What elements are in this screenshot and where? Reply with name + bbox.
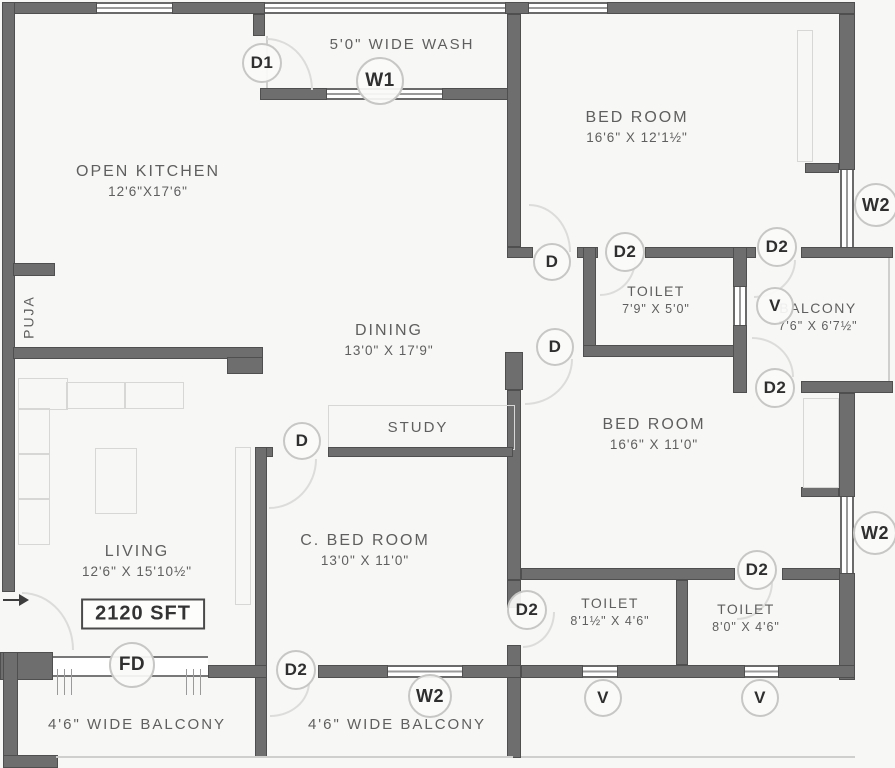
- room-label-bed-room-1: BED ROOM 16'6" X 12'1½": [585, 107, 688, 147]
- sofa: [124, 382, 184, 409]
- sofa: [66, 382, 126, 409]
- door-arc: [525, 359, 573, 405]
- wall-segment: [507, 645, 521, 758]
- sofa: [18, 453, 50, 500]
- window: [529, 2, 607, 14]
- room-label-toilet-2: TOILET 8'1½" X 4'6": [570, 594, 649, 630]
- door-marker-d: D: [533, 243, 571, 281]
- total-area-badge: 2120 SFT: [81, 599, 205, 630]
- room-label-study: STUDY: [388, 418, 449, 438]
- room-label-puja: PUJA: [20, 295, 39, 339]
- wall-segment: [3, 652, 18, 758]
- wall-segment: [583, 345, 747, 357]
- vent-window: [733, 287, 747, 325]
- window-marker-w2: W2: [408, 674, 452, 718]
- wall-segment: [801, 381, 893, 393]
- wall-segment: [2, 2, 15, 592]
- entry-arrow-icon: [3, 599, 27, 601]
- door-marker-d2: D2: [755, 368, 795, 408]
- wall-segment: [676, 580, 688, 665]
- door-marker-d: D: [536, 328, 574, 366]
- room-label-balcony-left: 4'6" WIDE BALCONY: [48, 715, 226, 735]
- room-label-open-kitchen: OPEN KITCHEN 12'6"X17'6": [76, 161, 220, 201]
- room-label-wash: 5'0" WIDE WASH: [330, 35, 475, 55]
- balcony-edge: [888, 258, 890, 381]
- room-label-balcony-center: 4'6" WIDE BALCONY: [308, 715, 486, 735]
- wall-segment: [253, 14, 265, 36]
- window-w2: [840, 170, 854, 247]
- door-marker-d2: D2: [757, 227, 797, 267]
- window-w2: [840, 497, 854, 573]
- wall-segment: [733, 247, 747, 287]
- vent-window: [583, 665, 617, 678]
- wall-segment: [2, 2, 97, 14]
- wall-segment: [583, 247, 596, 357]
- door-arc: [22, 592, 74, 650]
- room-label-toilet-1: TOILET 7'9" X 5'0": [622, 282, 690, 318]
- rug: [95, 448, 137, 514]
- door-marker-d2: D2: [737, 550, 777, 590]
- window-marker-w2: W2: [854, 183, 895, 227]
- room-label-dining: DINING 13'0" X 17'9": [344, 320, 433, 360]
- window: [97, 2, 172, 14]
- sofa: [18, 498, 50, 545]
- wardrobe: [803, 398, 839, 488]
- window-marker-w1: W1: [356, 57, 404, 105]
- wall-segment: [255, 447, 267, 758]
- room-label-toilet-3: TOILET 8'0" X 4'6": [712, 600, 780, 636]
- door-marker-d2: D2: [507, 590, 547, 630]
- wall-segment: [462, 665, 521, 678]
- wall-segment: [805, 163, 839, 173]
- room-label-living: LIVING 12'6" X 15'10½": [82, 541, 192, 581]
- wall-segment: [507, 14, 521, 247]
- wall-segment: [328, 447, 513, 457]
- wall-segment: [172, 2, 265, 14]
- wall-segment: [839, 393, 855, 497]
- wall-segment: [617, 665, 745, 678]
- window-marker-w2: W2: [853, 511, 895, 555]
- wall-segment: [521, 665, 583, 678]
- wall-segment: [3, 755, 58, 768]
- room-label-bed-room-2: BED ROOM 16'6" X 11'0": [602, 414, 705, 454]
- vent-marker-v: V: [584, 679, 622, 717]
- vent-window: [745, 665, 778, 678]
- door-marker-d2: D2: [605, 232, 645, 272]
- wall-segment: [607, 2, 855, 14]
- balcony-edge: [521, 756, 855, 758]
- door-marker-d1: D1: [242, 43, 282, 83]
- wall-segment: [839, 573, 855, 680]
- tv-unit: [235, 447, 251, 605]
- wall-segment: [505, 352, 523, 390]
- room-label-c-bed-room: C. BED ROOM 13'0" X 11'0": [300, 530, 430, 570]
- sofa: [18, 378, 68, 410]
- wall-segment: [839, 14, 855, 170]
- wall-segment: [13, 263, 55, 276]
- wall-segment: [227, 357, 263, 374]
- wall-segment: [208, 665, 267, 678]
- vent-marker-v: V: [756, 287, 794, 325]
- door-track-hatch: [186, 669, 206, 695]
- balcony-edge: [56, 756, 513, 758]
- door-marker-d2: D2: [276, 650, 316, 690]
- window: [265, 2, 505, 14]
- sofa: [18, 408, 50, 455]
- wall-segment: [318, 665, 388, 678]
- wall-segment: [733, 325, 747, 393]
- wall-segment: [801, 247, 893, 258]
- door-track-hatch: [57, 669, 77, 695]
- wardrobe: [797, 30, 813, 162]
- wall-segment: [521, 568, 735, 580]
- wall-segment: [13, 347, 263, 359]
- door-arc: [269, 459, 317, 509]
- wall-segment: [505, 2, 529, 14]
- wall-segment: [778, 665, 855, 678]
- door-marker-d: D: [283, 422, 321, 460]
- floor-plan: OPEN KITCHEN 12'6"X17'6" 5'0" WIDE WASH …: [0, 0, 895, 768]
- wall-segment: [782, 568, 840, 580]
- vent-marker-v: V: [741, 679, 779, 717]
- door-marker-fd: FD: [109, 642, 155, 688]
- wall-segment: [801, 487, 839, 497]
